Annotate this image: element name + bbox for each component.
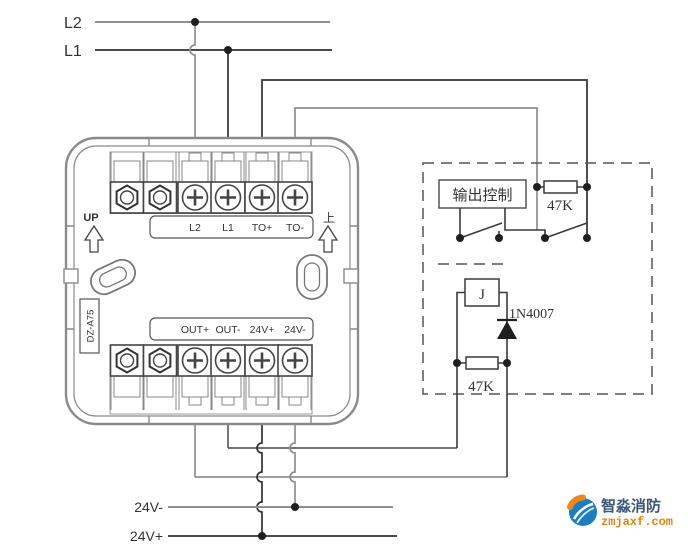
junction-dot	[191, 18, 199, 26]
relay-left-wire	[457, 293, 465, 449]
bus-label-24v-plus: 24V+	[130, 528, 163, 544]
coil-resistor-label: 47K	[468, 379, 494, 395]
terminal-label-l2: L2	[189, 222, 201, 234]
hex-terminal	[144, 345, 177, 376]
terminal-label-24v-minus: 24V-	[284, 324, 306, 336]
line-resistor-label: 47K	[547, 198, 573, 214]
relay-branch: J 1N4007 47K	[453, 279, 554, 477]
orientation-label-cn: 上	[323, 211, 335, 225]
junction-dot	[453, 359, 461, 367]
contact-dot	[541, 234, 549, 242]
control-lead-right	[505, 208, 545, 238]
junction-dot	[258, 532, 266, 540]
switch-blade-right	[545, 223, 587, 238]
module-wiring-diagram: L2 L1 24V- 24V+	[0, 0, 700, 553]
junction-dot	[291, 503, 299, 511]
resistor-body	[466, 357, 498, 369]
terminal-label-out-minus: OUT-	[215, 324, 241, 336]
terminal-label-24v-plus: 24V+	[250, 324, 275, 336]
case-side-tab-right	[344, 269, 358, 283]
io-module: UP 上 DZ-A75	[64, 138, 358, 424]
watermark-site: zmjaxf.com	[601, 515, 673, 529]
bus-label-l1: L1	[64, 43, 82, 60]
terminal-label-to-minus: TO-	[286, 222, 304, 234]
hex-terminal	[111, 345, 144, 376]
screw-terminals-bottom	[178, 345, 312, 376]
watermark: 智淼消防 zmjaxf.com	[569, 497, 673, 529]
terminal-label-l1: L1	[222, 222, 234, 234]
contact-dot	[495, 234, 503, 242]
hex-terminal	[144, 182, 177, 213]
junction-dot	[583, 183, 591, 191]
junction-dot	[503, 359, 511, 367]
terminal-label-to-plus: TO+	[252, 222, 273, 234]
resistor-body	[544, 181, 577, 193]
case-side-tab-left	[64, 269, 78, 283]
diode-label: 1N4007	[509, 307, 554, 322]
model-label: DZ-A75	[86, 310, 97, 343]
diode-triangle	[497, 321, 517, 339]
orientation-label-up: UP	[83, 212, 98, 224]
output-control-label: 输出控制	[452, 187, 512, 204]
terminal-label-out-plus: OUT+	[181, 324, 209, 336]
junction-dot	[533, 183, 541, 191]
contact-dot	[583, 234, 591, 242]
bus-label-l2: L2	[64, 15, 82, 32]
screw-terminals-top	[178, 182, 312, 213]
relay-label: J	[479, 287, 485, 303]
wiring-diagram-page: L2 L1 24V- 24V+	[0, 0, 700, 553]
watermark-brand: 智淼消防	[601, 497, 661, 515]
hex-terminal	[111, 182, 144, 213]
line-resistor: 47K	[533, 181, 591, 214]
contact-dot	[456, 234, 464, 242]
bus-label-24v-minus: 24V-	[134, 499, 163, 515]
junction-dot	[224, 46, 232, 54]
